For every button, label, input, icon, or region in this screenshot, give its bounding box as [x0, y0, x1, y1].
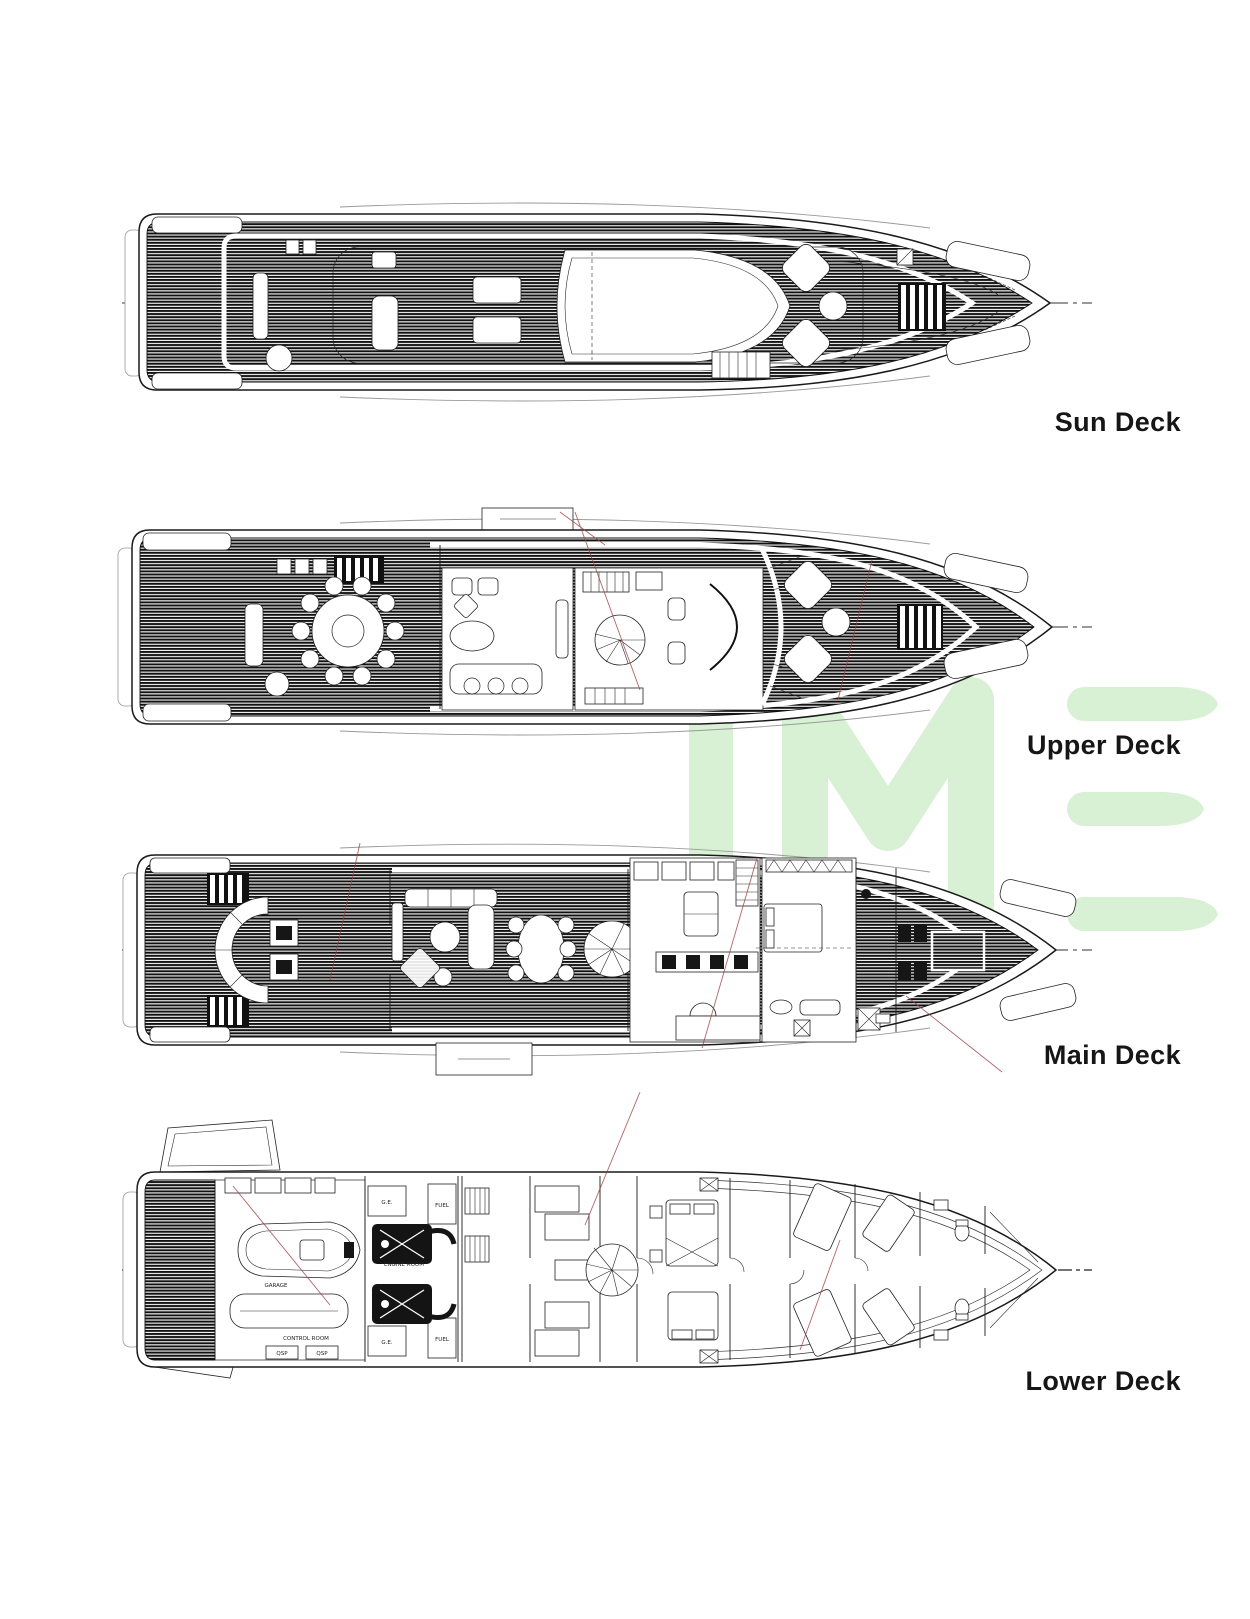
stairs-ladder: [712, 352, 770, 378]
tender-boat: [238, 1222, 360, 1278]
fuel-label: FUEL: [435, 1337, 450, 1343]
control-room-label: CONTROL ROOM: [283, 1336, 329, 1342]
deck-grating: [898, 283, 946, 331]
master-cabin: [756, 858, 856, 1042]
generator-label: G.E.: [381, 1200, 392, 1206]
fuel-label: FUEL: [435, 1203, 450, 1209]
engine-room-label: ENGINE ROOM: [384, 1262, 424, 1268]
spiral-staircase: [586, 1244, 638, 1296]
deck-plan-sheet: GARAGE CONTROL ROOM QSP QSP G.E. G.E. FU…: [0, 0, 1250, 1619]
deck-grating: [897, 604, 943, 650]
sky-lounge: [442, 568, 573, 710]
garage-label: GARAGE: [264, 1283, 288, 1289]
qsp-label: QSP: [276, 1351, 288, 1357]
upper-deck-label: Upper Deck: [821, 731, 1181, 761]
sun-spa-circle: [266, 345, 292, 371]
sun-deck-plan: [0, 190, 1250, 420]
qsp-label: QSP: [316, 1351, 328, 1357]
lower-deck-plan: GARAGE CONTROL ROOM QSP QSP G.E. G.E. FU…: [0, 1080, 1250, 1390]
dining-area: [506, 915, 640, 983]
sun-deck-label: Sun Deck: [821, 408, 1181, 438]
radar-mast-box: [482, 508, 573, 530]
generator-label: G.E.: [381, 1340, 392, 1346]
galley: [630, 858, 760, 1042]
main-deck-label: Main Deck: [821, 1041, 1181, 1071]
upper-deck-plan: [0, 470, 1250, 760]
lower-deck-label: Lower Deck: [821, 1367, 1181, 1397]
